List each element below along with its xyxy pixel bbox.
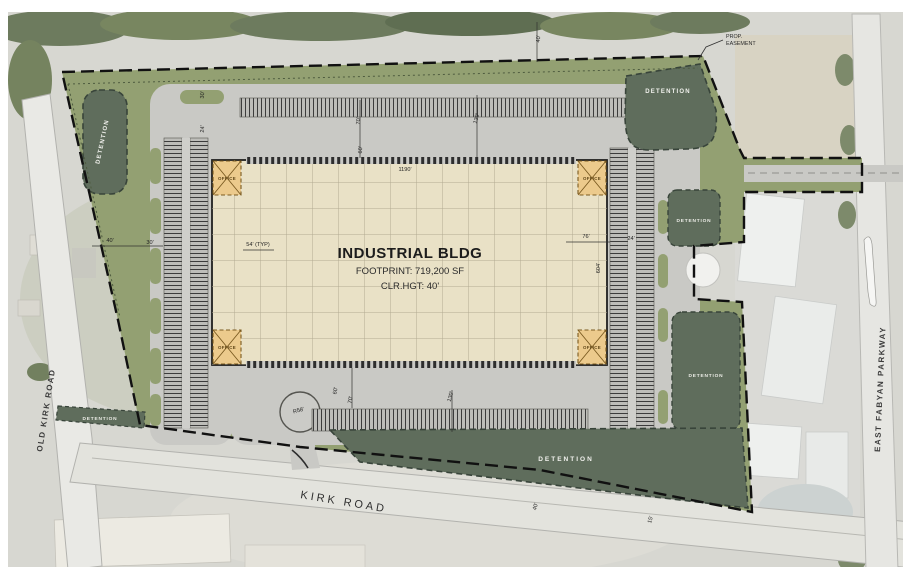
- dimension-label: 40': [536, 35, 542, 43]
- trailer-row-west-a: [164, 138, 182, 428]
- building-title: INDUSTRIAL BLDG: [338, 245, 483, 262]
- office-ne: OFFICE: [578, 161, 606, 195]
- trailer-row-east-a: [610, 148, 628, 468]
- dimension-label: 70': [356, 117, 362, 125]
- trailer-row-west-b: [190, 138, 208, 428]
- building-clear-height: CLR.HGT: 40': [381, 281, 439, 292]
- dimension-label: 24': [200, 125, 206, 133]
- dimension-label: 70': [347, 396, 354, 404]
- prop-easement-label-line2: EASEMENT: [726, 41, 756, 47]
- trailer-row-north: [240, 98, 650, 117]
- dimension-label: 60': [332, 387, 339, 395]
- industrial-building: OFFICE OFFICE OFFICE OFFICE: [212, 157, 607, 368]
- detention-northeast: DETENTION: [625, 64, 716, 150]
- detention-label: DETENTION: [689, 373, 724, 379]
- detention-label: DETENTION: [538, 456, 594, 463]
- dimension-label: 24': [627, 236, 634, 242]
- office-sw: OFFICE: [213, 330, 241, 364]
- existing-tank: [686, 253, 720, 287]
- detention-northwest: DETENTION: [83, 90, 127, 194]
- detention-label: DETENTION: [677, 218, 712, 224]
- trailer-row-east-b: [636, 148, 654, 468]
- detention-east-upper: DETENTION: [668, 190, 720, 246]
- dimension-label: 30': [146, 240, 153, 246]
- dock-doors-south: [246, 361, 576, 368]
- office-label: OFFICE: [218, 345, 236, 350]
- detention-label: DETENTION: [83, 416, 118, 422]
- site-plan-canvas: OFFICE OFFICE OFFICE OFFICE: [0, 0, 911, 577]
- office-label: OFFICE: [583, 345, 601, 350]
- prop-easement-label-line1: PROP.: [726, 34, 742, 40]
- dimension-label: 604': [596, 263, 602, 273]
- dimension-label: 30': [200, 91, 206, 99]
- dimension-label: 60': [358, 146, 364, 154]
- detention-east-lower: DETENTION: [672, 312, 740, 430]
- office-label: OFFICE: [218, 176, 236, 181]
- site-plan-svg: OFFICE OFFICE OFFICE OFFICE: [0, 0, 911, 577]
- office-label: OFFICE: [583, 176, 601, 181]
- office-se: OFFICE: [578, 330, 606, 364]
- office-nw: OFFICE: [213, 161, 241, 195]
- dimension-label: 54' (TYP): [246, 242, 270, 248]
- aerial-photo-layer: OFFICE OFFICE OFFICE OFFICE: [0, 8, 911, 577]
- dimension-label: 1190': [398, 167, 411, 173]
- detention-label: DETENTION: [645, 89, 690, 95]
- dimension-label: 76': [582, 234, 589, 240]
- dock-doors-north: [246, 157, 576, 164]
- building-footprint: FOOTPRINT: 719,200 SF: [356, 266, 464, 277]
- dimension-label: 40': [106, 238, 113, 244]
- trailer-row-south: [312, 409, 588, 431]
